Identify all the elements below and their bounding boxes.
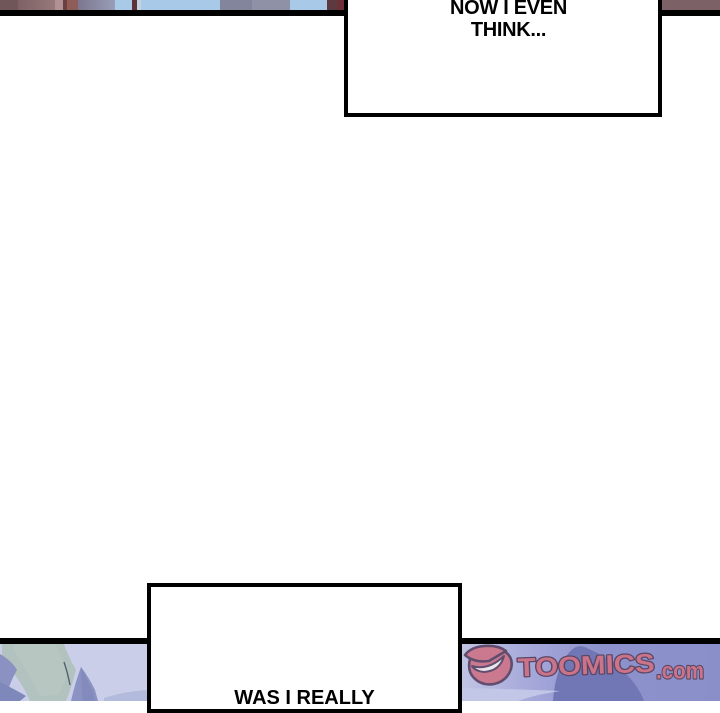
svg-text:.com: .com	[656, 657, 704, 683]
svg-text:TOOMICS: TOOMICS	[517, 647, 655, 682]
